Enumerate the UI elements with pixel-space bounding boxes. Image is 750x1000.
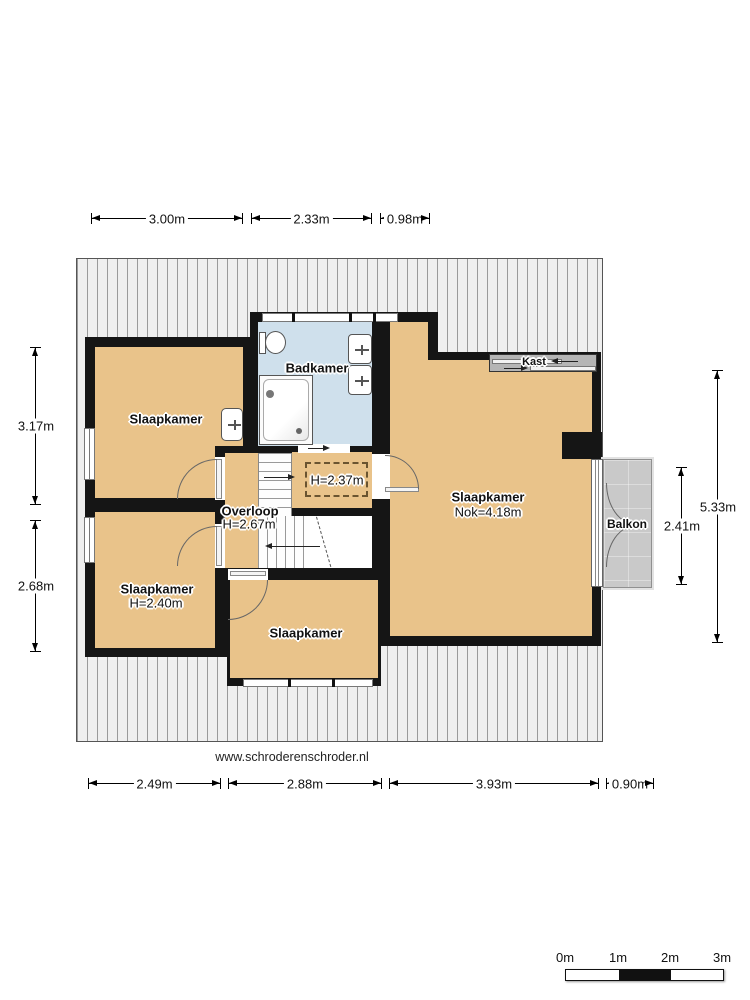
label-bedroom-bottom-left-height: H=2.40m [129, 596, 182, 611]
toilet-icon [265, 331, 286, 354]
closet-slide-arrowhead-icon [551, 358, 558, 364]
label-bedroom-bottom-left: Slaapkamer [121, 582, 194, 597]
label-closet: Kast [522, 356, 546, 368]
stairs-up-arrow [264, 477, 288, 478]
dimension-bottom-2: 2.88m [228, 777, 382, 790]
closet-slide-arrow-left [556, 361, 578, 362]
window-left-top [84, 428, 95, 480]
dimension-top-2: 2.33m [251, 212, 372, 225]
label-bathroom: Badkamer [286, 361, 349, 376]
balcony-door-frame [591, 459, 603, 587]
window-mullion [332, 679, 335, 687]
sink-icon [348, 365, 372, 395]
scale-bar: 0m 1m 2m 3m [557, 950, 733, 982]
sliding-door-arrowhead-icon [323, 445, 330, 451]
scale-label-1: 1m [609, 950, 627, 965]
shower-icon [259, 375, 313, 445]
label-balcony: Balkon [607, 517, 647, 531]
shower-head-icon [266, 390, 274, 398]
scale-label-0: 0m [556, 950, 574, 965]
label-bedroom-bottom-middle: Slaapkamer [270, 626, 343, 641]
wall-landing-divider [292, 508, 372, 516]
dimension-top-1: 3.00m [91, 212, 243, 225]
dimension-left-1: 3.17m [29, 347, 42, 505]
wall-chunk-right [562, 432, 602, 459]
shower-tray [263, 379, 309, 441]
window-mullion [373, 313, 376, 322]
dimension-bottom-1: 2.49m [88, 777, 221, 790]
dimension-top-3: 0.98m [380, 212, 430, 225]
window-top-strip [262, 313, 398, 322]
window-mullion [292, 313, 295, 322]
tap-icon [361, 376, 363, 386]
scale-bar-segment [619, 970, 671, 980]
sliding-door-arrow [308, 448, 324, 449]
shower-drain-icon [296, 428, 302, 434]
window-mullion [288, 679, 291, 687]
stairs-down-arrowhead-icon [265, 543, 272, 549]
tap-icon [361, 345, 363, 355]
dimension-bottom-4: 0.90m [606, 777, 654, 790]
scale-label-2: 2m [661, 950, 679, 965]
scale-label-3: 3m [713, 950, 731, 965]
scale-bar-ruler [565, 969, 724, 981]
dimension-right-inner: 2.41m [675, 467, 688, 585]
window-bottom-strip [243, 679, 373, 687]
stairs-up-arrowhead-icon [288, 474, 295, 480]
window-left-bottom [84, 517, 95, 563]
stairs-down-arrow [272, 546, 320, 547]
dimension-bottom-3: 3.93m [389, 777, 599, 790]
bedroom-sink-icon [221, 408, 243, 441]
closet-slide-arrow-right [504, 368, 522, 369]
door-leaf [230, 571, 266, 576]
label-bedroom-right: Slaapkamer [452, 490, 525, 505]
label-bedroom-top-left: Slaapkamer [130, 412, 203, 427]
label-landing-height: H=2.67m [222, 517, 275, 532]
tap-icon [234, 420, 236, 430]
dimension-left-2: 2.68m [29, 520, 42, 652]
window-mullion [349, 313, 352, 322]
dimension-right-outer: 5.33m [711, 370, 724, 643]
stairwell-void [310, 516, 372, 568]
label-bedroom-right-height: Nok=4.18m [455, 505, 522, 520]
sink-icon [348, 334, 372, 364]
room-bedroom-right-notch [390, 322, 428, 362]
label-low-ceiling: H=2.37m [310, 473, 363, 488]
website-text: www.schroderenschroder.nl [182, 750, 402, 764]
